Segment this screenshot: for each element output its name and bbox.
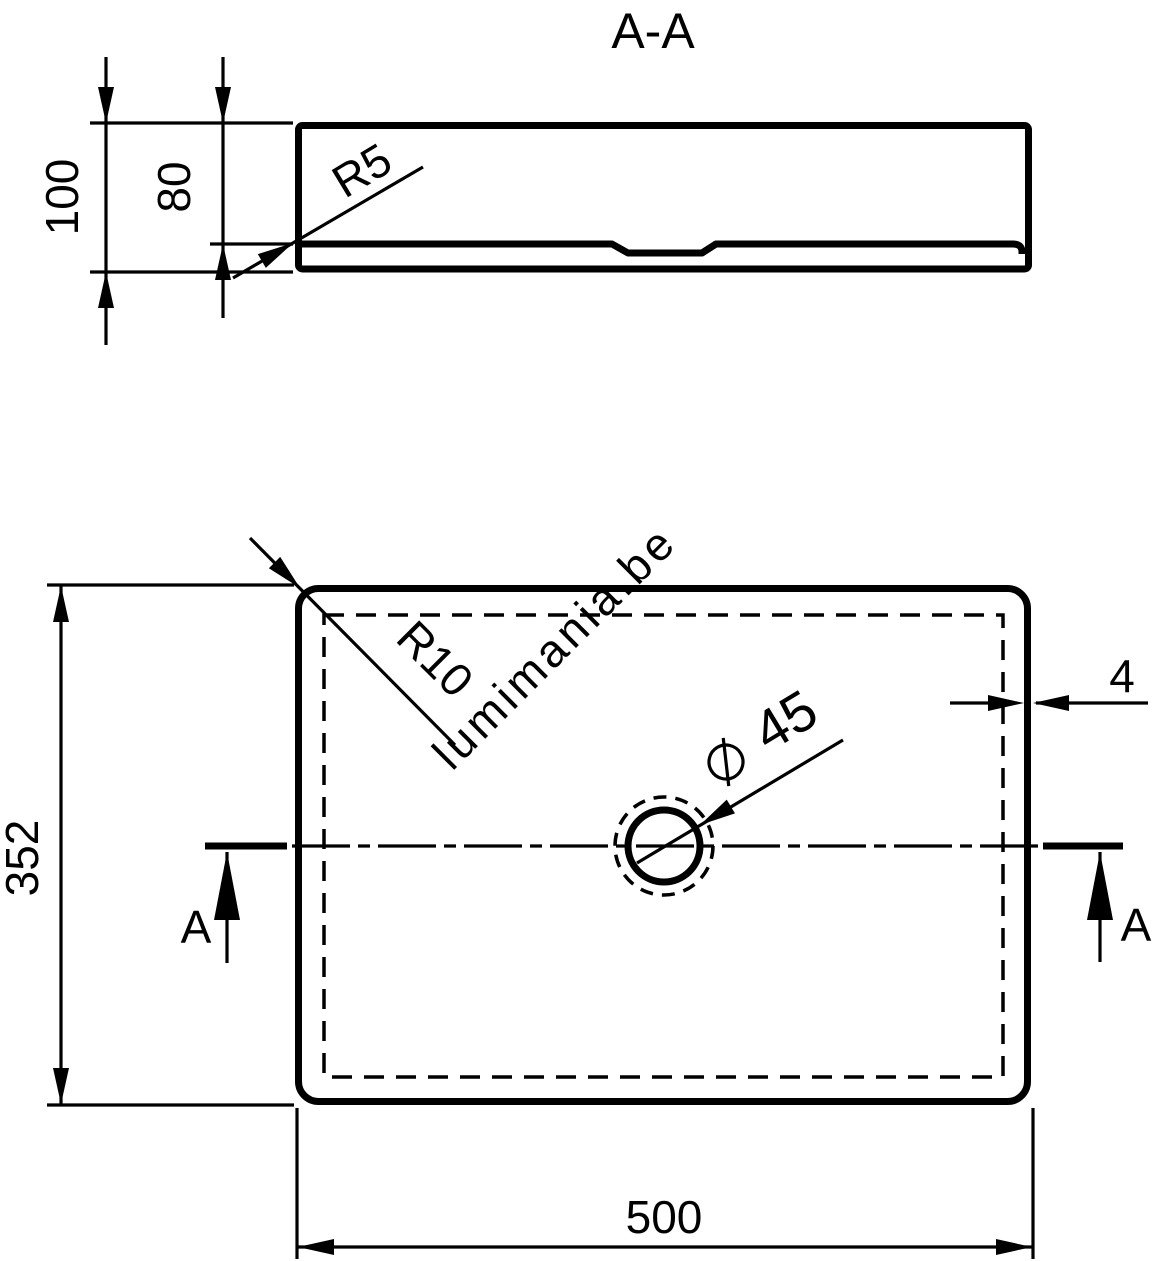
dim-width-label: 500 (626, 1191, 703, 1243)
dim-rim-thickness-label: 4 (1109, 650, 1135, 702)
dim-overall-height-label: 100 (36, 159, 88, 236)
sink-technical-drawing: lumimania.be A-A 100 80 R5 (0, 0, 1154, 1261)
section-marker-left-label: A (181, 901, 212, 953)
technical-drawing-page: lumimania.be A-A 100 80 R5 (0, 0, 1154, 1261)
section-marker-right-label: A (1121, 899, 1152, 951)
dim-depth-label: 352 (0, 820, 48, 897)
dim-basin-depth-label: 80 (148, 161, 200, 212)
section-title: A-A (611, 3, 695, 59)
